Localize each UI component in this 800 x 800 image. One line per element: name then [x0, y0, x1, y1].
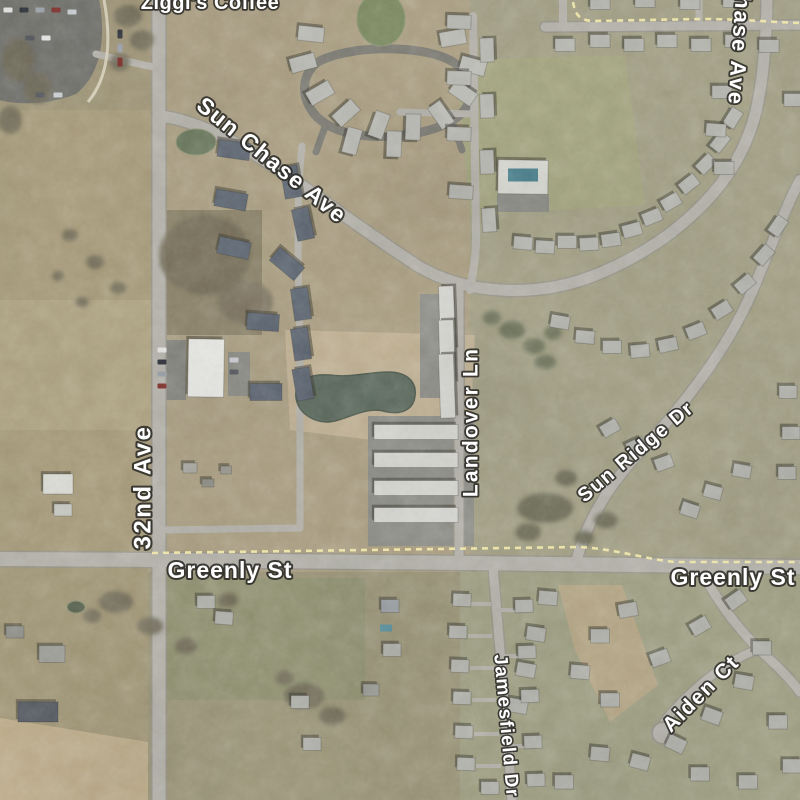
- street-greenly-st-east: Greenly St: [670, 564, 795, 590]
- aerial-imagery: Ziggi's CoffeeSun Chase AveSun Chase Ave…: [0, 0, 800, 800]
- satellite-map[interactable]: Ziggi's CoffeeSun Chase AveSun Chase Ave…: [0, 0, 800, 800]
- poi-ziggis-coffee: Ziggi's Coffee: [141, 0, 279, 14]
- map-viewport[interactable]: Ziggi's CoffeeSun Chase AveSun Chase Ave…: [0, 0, 800, 800]
- street-greenly-st-west: Greenly St: [167, 557, 292, 583]
- street-32nd-ave: 32nd Ave: [130, 425, 157, 550]
- street-landover-ln: Landover Ln: [460, 347, 483, 497]
